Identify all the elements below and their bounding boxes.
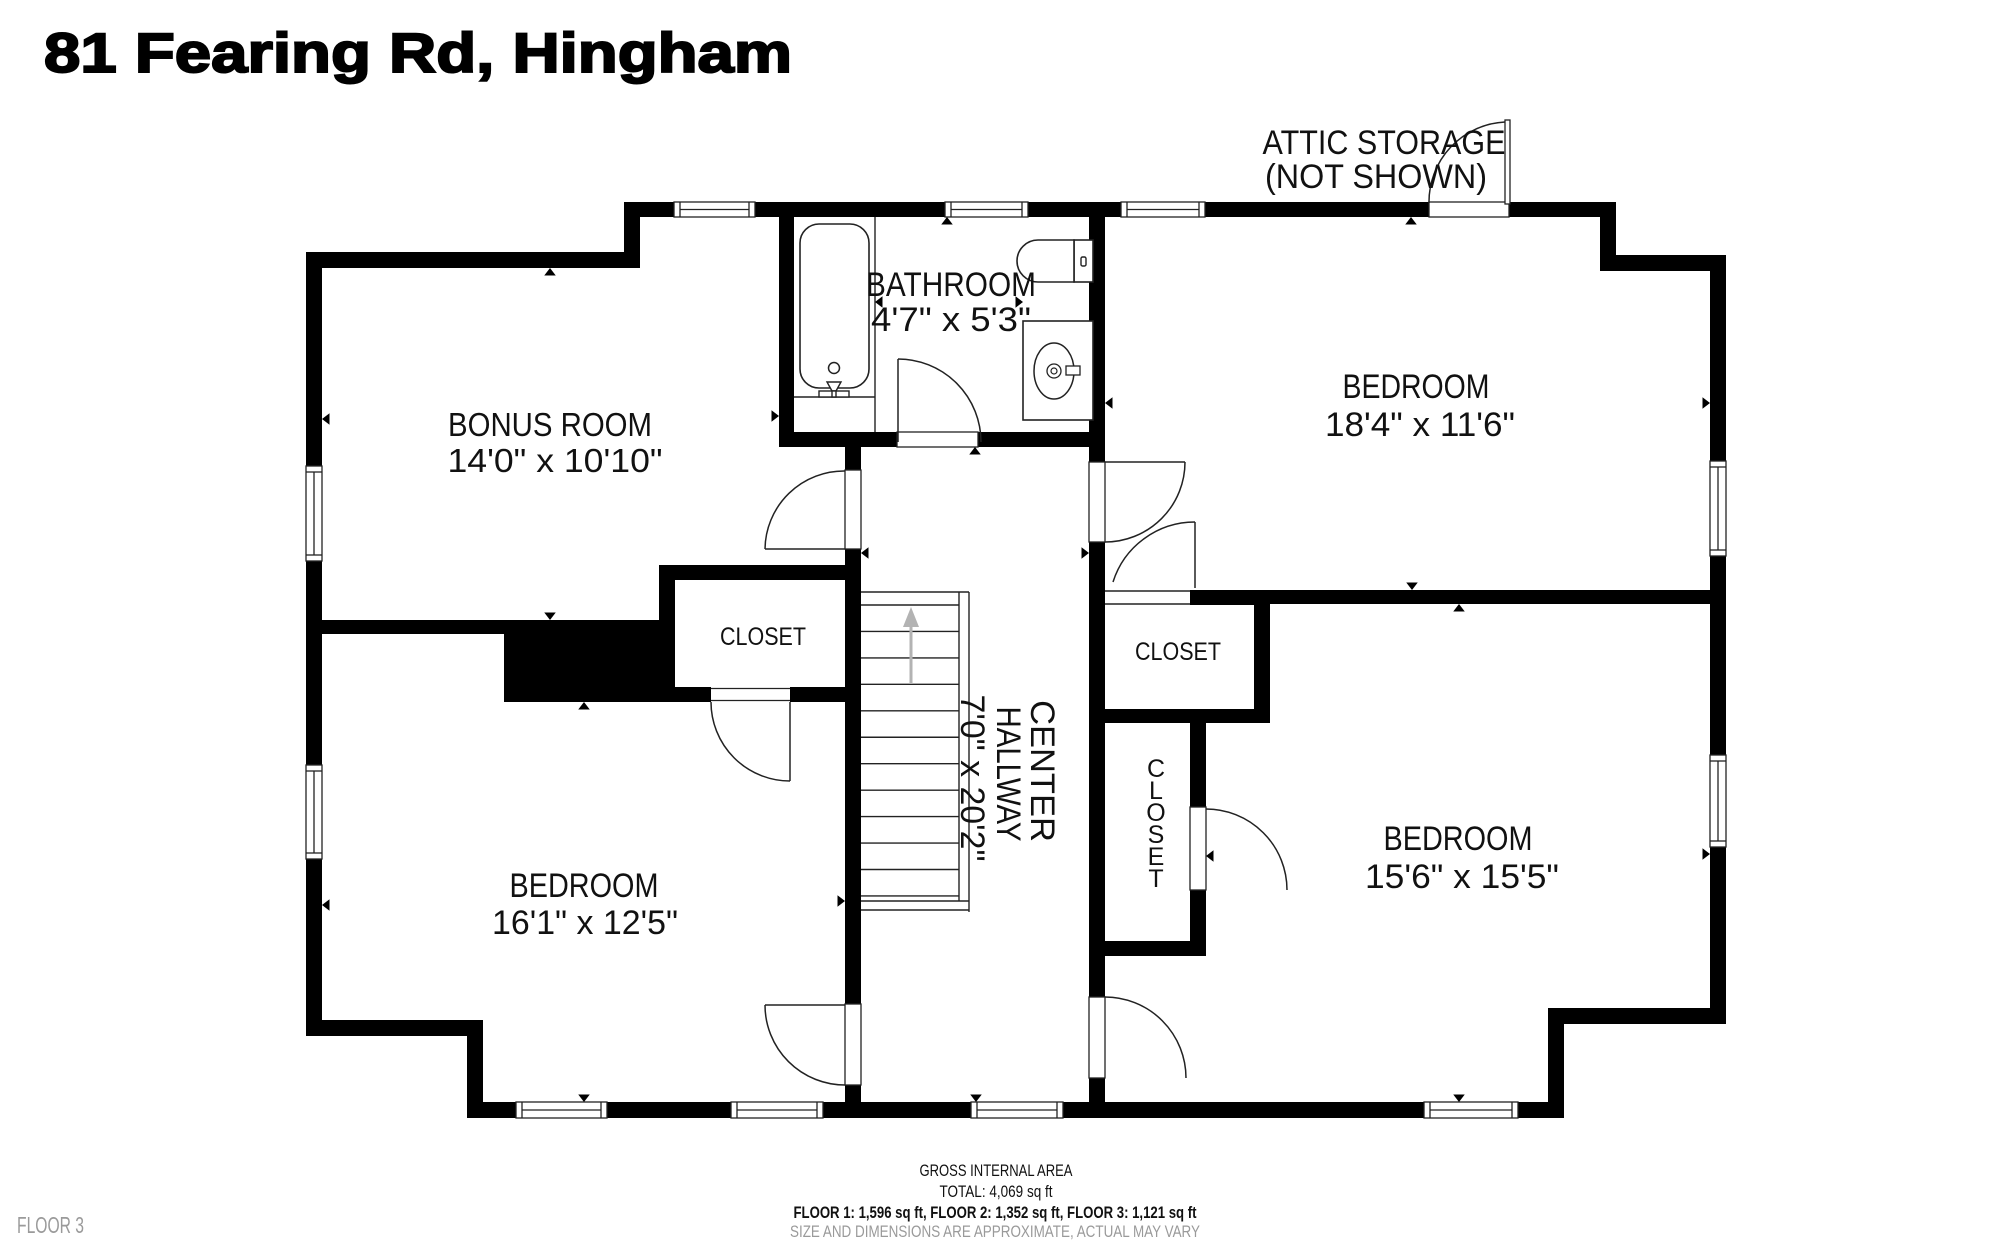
- svg-text:4'7" x 5'3": 4'7" x 5'3": [871, 301, 1031, 339]
- svg-text:7'0" x 20'2": 7'0" x 20'2": [953, 695, 991, 862]
- svg-text:BEDROOM: BEDROOM: [1384, 820, 1533, 858]
- svg-text:BONUS ROOM: BONUS ROOM: [448, 406, 652, 443]
- svg-text:FLOOR 1: 1,596 sq ft, FLOOR 2:: FLOOR 1: 1,596 sq ft, FLOOR 2: 1,352 sq …: [794, 1203, 1197, 1222]
- svg-text:ATTIC STORAGE: ATTIC STORAGE: [1263, 124, 1506, 162]
- svg-text:15'6" x 15'5": 15'6" x 15'5": [1365, 858, 1559, 896]
- svg-text:T: T: [1148, 865, 1163, 893]
- svg-text:14'0" x 10'10": 14'0" x 10'10": [448, 442, 663, 479]
- svg-text:GROSS INTERNAL AREA: GROSS INTERNAL AREA: [920, 1161, 1073, 1180]
- svg-text:BATHROOM: BATHROOM: [866, 266, 1036, 304]
- svg-text:HALLWAY: HALLWAY: [989, 707, 1027, 842]
- svg-text:SIZE AND DIMENSIONS ARE APPROX: SIZE AND DIMENSIONS ARE APPROXIMATE, ACT…: [790, 1222, 1200, 1241]
- svg-text:18'4" x 11'6": 18'4" x 11'6": [1325, 406, 1515, 444]
- svg-text:CLOSET: CLOSET: [720, 623, 806, 651]
- svg-text:BEDROOM: BEDROOM: [510, 867, 659, 905]
- svg-text:16'1" x 12'5": 16'1" x 12'5": [492, 904, 678, 942]
- svg-text:CLOSET: CLOSET: [1135, 638, 1221, 666]
- svg-text:(NOT SHOWN): (NOT SHOWN): [1265, 158, 1487, 196]
- svg-text:FLOOR 3: FLOOR 3: [17, 1212, 84, 1238]
- svg-text:TOTAL: 4,069 sq ft: TOTAL: 4,069 sq ft: [940, 1182, 1053, 1201]
- svg-text:BEDROOM: BEDROOM: [1343, 368, 1490, 406]
- svg-text:81 Fearing Rd, Hingham: 81 Fearing Rd, Hingham: [44, 21, 792, 84]
- svg-text:CENTER: CENTER: [1023, 700, 1061, 842]
